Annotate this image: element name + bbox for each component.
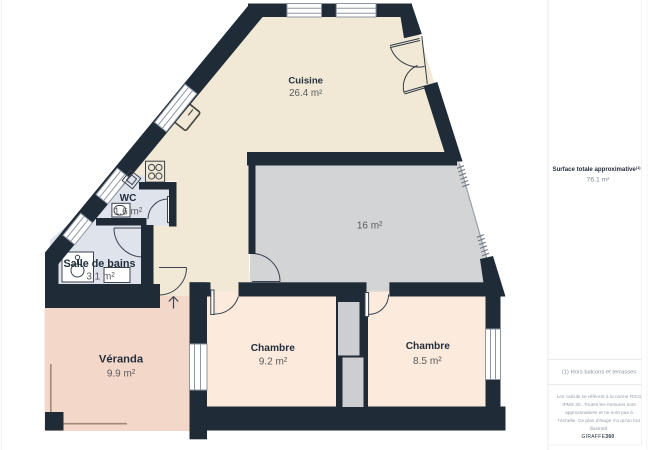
- svg-text:(1) Hors balcons et terrasses: (1) Hors balcons et terrasses: [562, 370, 637, 376]
- svg-text:8.5 m²: 8.5 m²: [413, 356, 442, 367]
- svg-text:16 m²: 16 m²: [357, 221, 383, 232]
- svg-text:76.1 m²: 76.1 m²: [587, 177, 610, 184]
- svg-text:WC: WC: [120, 193, 137, 204]
- svg-text:Véranda: Véranda: [99, 354, 144, 366]
- svg-text:illustratif.: illustratif.: [590, 426, 609, 432]
- svg-text:Chambre: Chambre: [406, 341, 450, 352]
- svg-text:l'échelle. Ce plan d'étage n'a: l'échelle. Ce plan d'étage n'a qu'un but: [558, 418, 640, 424]
- svg-text:Chambre: Chambre: [251, 343, 295, 354]
- svg-text:Surface totale approximative(1: Surface totale approximative(1): [553, 166, 642, 173]
- svg-text:Cuisine: Cuisine: [288, 76, 323, 87]
- svg-text:IPMS 3C. Toutes les mesures so: IPMS 3C. Toutes les mesures sont: [562, 402, 636, 408]
- svg-text:Les calculs se réfèrent à la n: Les calculs se réfèrent à la norme RICS: [557, 394, 642, 400]
- svg-text:Salle de bains: Salle de bains: [63, 258, 135, 270]
- svg-text:26.4 m²: 26.4 m²: [289, 88, 323, 99]
- svg-text:3.1 m²: 3.1 m²: [86, 272, 115, 283]
- svg-text:9.2 m²: 9.2 m²: [259, 357, 288, 368]
- svg-text:approximatives et ne sont pas: approximatives et ne sont pas à: [565, 410, 633, 416]
- svg-text:GIRAFFE360: GIRAFFE360: [581, 434, 614, 440]
- svg-text:1.6 m²: 1.6 m²: [114, 207, 143, 218]
- svg-text:9.9 m²: 9.9 m²: [107, 369, 136, 380]
